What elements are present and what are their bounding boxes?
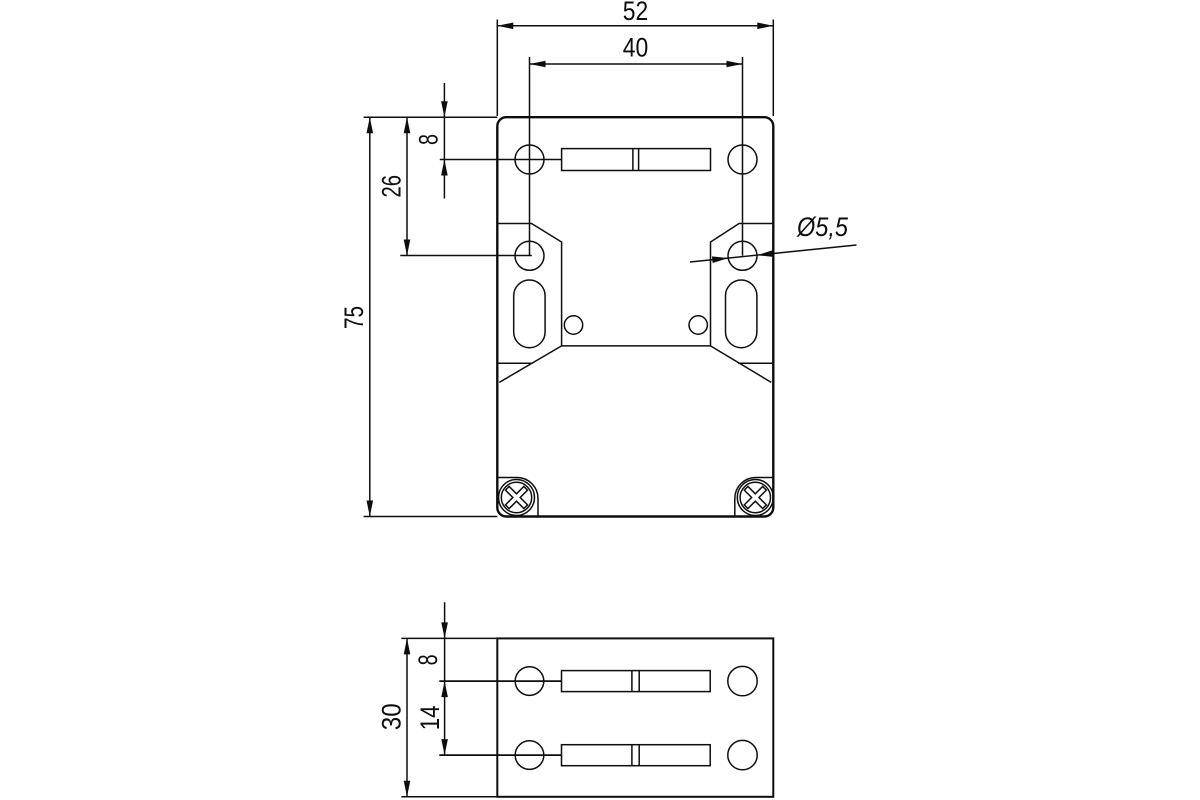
svg-text:26: 26 — [377, 175, 407, 198]
svg-text:Ø5,5: Ø5,5 — [796, 212, 849, 242]
svg-text:75: 75 — [339, 306, 369, 329]
svg-text:8: 8 — [413, 654, 443, 665]
svg-text:8: 8 — [414, 134, 444, 145]
svg-text:52: 52 — [623, 0, 649, 26]
svg-text:14: 14 — [415, 706, 445, 731]
svg-text:30: 30 — [377, 703, 407, 730]
svg-text:40: 40 — [623, 33, 649, 63]
